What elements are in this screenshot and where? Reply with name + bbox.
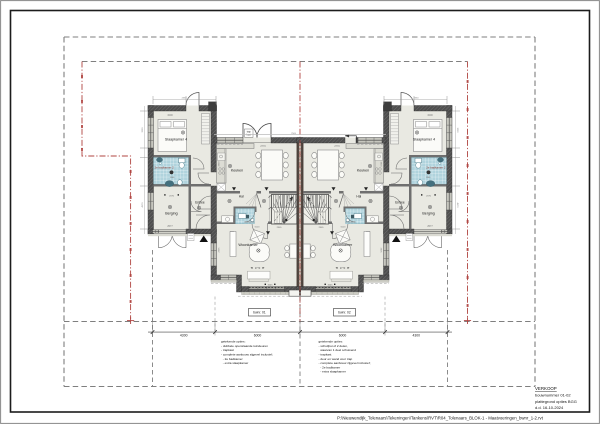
svg-text:6000: 6000 <box>254 334 262 338</box>
svg-text:bouwnummer 01-02: bouwnummer 01-02 <box>535 393 571 398</box>
svg-text:2330: 2330 <box>182 98 188 100</box>
svg-text:3200: 3200 <box>167 114 173 117</box>
svg-text:3245: 3245 <box>268 284 274 286</box>
svg-text:Entree: Entree <box>395 200 405 204</box>
svg-text:4570: 4570 <box>456 203 458 209</box>
svg-text:7565: 7565 <box>291 133 297 135</box>
svg-text:3245: 3245 <box>328 284 334 286</box>
svg-text:3230: 3230 <box>456 128 458 134</box>
svg-text:2330: 2330 <box>414 98 420 100</box>
svg-text:- extra slaapkamer: - extra slaapkamer <box>319 370 346 374</box>
svg-text:2577: 2577 <box>167 225 173 228</box>
svg-text:3200: 3200 <box>427 114 433 117</box>
svg-text:Woonkamer: Woonkamer <box>333 243 353 247</box>
svg-text:4300: 4300 <box>413 334 421 338</box>
svg-text:2370: 2370 <box>169 195 175 197</box>
svg-text:2905: 2905 <box>319 227 325 229</box>
svg-text:bwnr. 01: bwnr. 01 <box>253 311 266 315</box>
svg-text:2770: 2770 <box>260 145 266 148</box>
svg-text:Keuken: Keuken <box>357 169 369 173</box>
svg-text:2e badkamer 2: 2e badkamer 2 <box>426 166 446 170</box>
svg-text:3800: 3800 <box>380 162 382 168</box>
svg-text:- extra slaapkamer: - extra slaapkamer <box>221 361 248 365</box>
svg-text:3230: 3230 <box>142 127 144 133</box>
svg-text:2905: 2905 <box>277 227 283 229</box>
svg-text:d.d. 16-10-2024: d.d. 16-10-2024 <box>535 405 564 410</box>
svg-text:Hal: Hal <box>356 194 361 198</box>
svg-text:5000: 5000 <box>341 227 347 229</box>
svg-text:3800: 3800 <box>219 161 221 167</box>
svg-text:kast: kast <box>247 134 252 137</box>
svg-text:5000: 5000 <box>255 227 261 229</box>
svg-text:2770: 2770 <box>255 267 261 270</box>
svg-text:Keuken: Keuken <box>231 169 243 173</box>
svg-text:plattegrond opties BGG: plattegrond opties BGG <box>535 399 577 404</box>
svg-text:2770: 2770 <box>340 267 346 270</box>
svg-text:bwnr. 02: bwnr. 02 <box>338 311 351 315</box>
svg-text:VERKOOP: VERKOOP <box>535 386 557 391</box>
svg-text:Berging: Berging <box>165 211 177 215</box>
svg-text:2577: 2577 <box>427 225 433 228</box>
svg-text:Berging: Berging <box>422 211 434 215</box>
svg-text:2905: 2905 <box>219 247 221 253</box>
svg-text:2905: 2905 <box>380 248 382 254</box>
svg-text:P:\Nieuwendijk_Tolenaars\Teken: P:\Nieuwendijk_Tolenaars\Tekeningen\Tank… <box>337 415 544 420</box>
svg-text:4570: 4570 <box>142 202 144 208</box>
svg-text:Woonkamer: Woonkamer <box>238 243 258 247</box>
svg-text:4300: 4300 <box>180 334 188 338</box>
svg-text:Slaapkamer 4: Slaapkamer 4 <box>165 138 187 142</box>
svg-text:2e badkamer 2: 2e badkamer 2 <box>155 166 175 170</box>
svg-text:2370: 2370 <box>426 195 432 197</box>
svg-text:Entree: Entree <box>195 200 205 204</box>
svg-text:Slaapkamer 4: Slaapkamer 4 <box>413 138 435 142</box>
svg-text:Hal: Hal <box>239 194 244 198</box>
svg-text:2770: 2770 <box>334 145 340 148</box>
svg-text:6000: 6000 <box>339 334 347 338</box>
